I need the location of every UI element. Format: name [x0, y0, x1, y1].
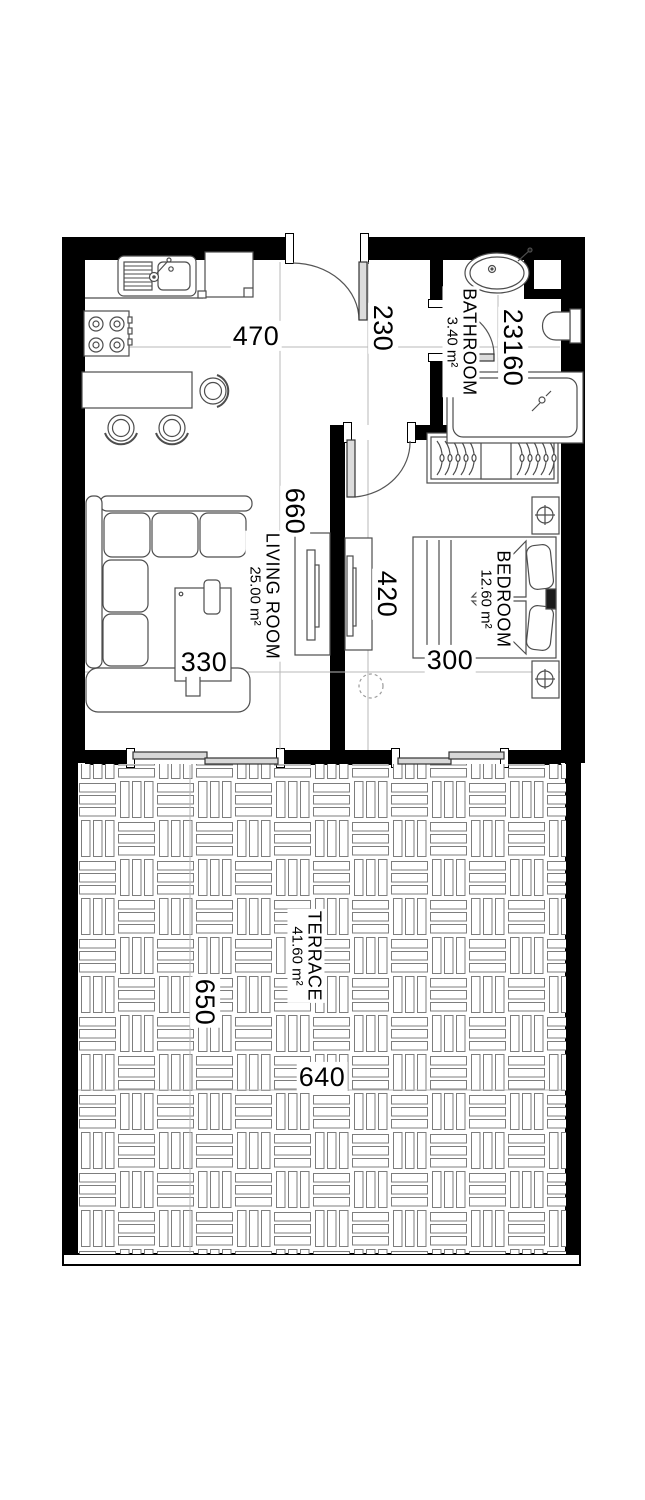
- wall-top-left: [62, 237, 288, 260]
- door-jamb: [343, 422, 352, 443]
- terrace-edge: [62, 1253, 581, 1266]
- bedroom-door: [347, 440, 410, 497]
- wall-bathroom-left-upper: [430, 260, 443, 303]
- wall-bathroom-left-lower: [430, 362, 443, 425]
- sofa: [86, 496, 252, 712]
- nightstand: [532, 497, 559, 534]
- chair-icon: [156, 415, 188, 444]
- door-jamb: [391, 748, 400, 768]
- room-area: 41.60 m²: [288, 911, 305, 1001]
- entrance-door: [293, 262, 367, 320]
- coffee-table: [175, 580, 231, 696]
- wall-terrace-left: [62, 763, 78, 1256]
- nightstand: [532, 661, 559, 698]
- tv-unit-bedroom: [345, 538, 372, 650]
- dining-table: [82, 372, 192, 408]
- chair-icon: [200, 375, 228, 407]
- wall-left: [62, 237, 85, 763]
- wardrobe: [427, 433, 558, 483]
- wall-bottom-seg1: [85, 750, 130, 765]
- stove-icon: [84, 311, 132, 356]
- door-jamb: [500, 748, 509, 768]
- floor-plan: 470 230 230 160 660 330 420 300 650 640 …: [0, 0, 645, 1500]
- room-name: TERRACE: [304, 911, 324, 1001]
- chair-icon: [105, 415, 137, 444]
- tv-unit-living: [295, 533, 330, 655]
- door-jamb: [285, 233, 294, 264]
- sliding-door-bedroom-terrace: [398, 752, 504, 764]
- wall-terrace-right: [565, 763, 581, 1256]
- terrace-floor: [78, 764, 566, 1254]
- door-jamb: [276, 748, 285, 768]
- ceiling-lamp-icon: [359, 674, 383, 698]
- wall-bottom-seg3: [505, 750, 561, 765]
- sliding-door-living-terrace: [133, 752, 278, 764]
- wall-top-right: [365, 237, 585, 260]
- room-area: 3.40 m²: [443, 288, 460, 395]
- wall-bedroom-top-right: [411, 425, 561, 440]
- room-name: BATHROOM: [459, 288, 479, 395]
- wall-divider-living-bedroom: [330, 425, 345, 765]
- room-name: LIVING ROOM: [262, 533, 282, 660]
- wall-shaft-bottom: [524, 289, 561, 299]
- room-name: BEDROOM: [493, 550, 513, 647]
- door-jamb: [407, 422, 416, 443]
- door-jamb: [126, 748, 135, 768]
- room-area: 12.60 m²: [477, 550, 494, 647]
- wall-right: [561, 237, 585, 763]
- door-jamb: [360, 233, 369, 264]
- room-area: 25.00 m²: [246, 533, 263, 660]
- kitchen-sink-icon: [118, 256, 196, 296]
